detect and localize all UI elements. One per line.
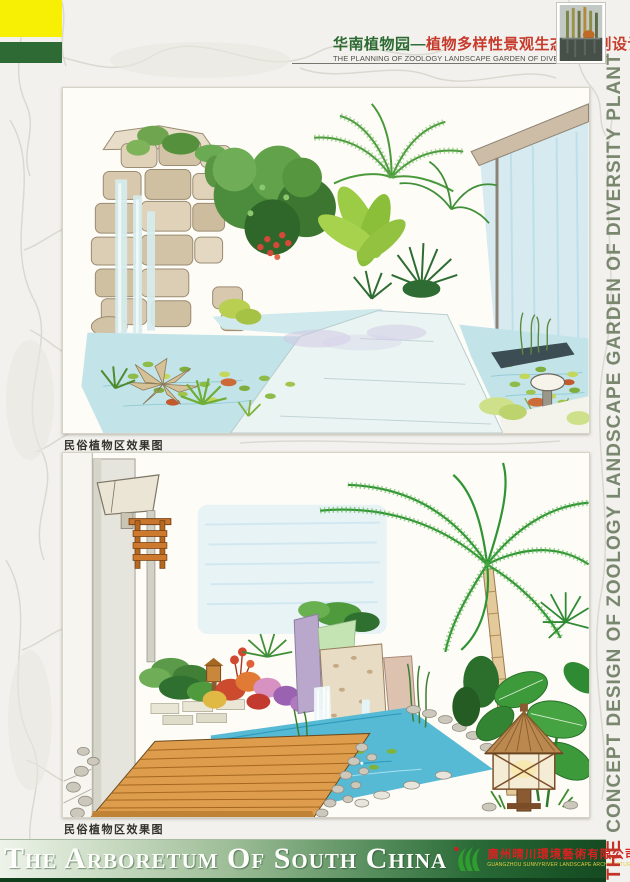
panel-caption: 民俗植物区效果图 xyxy=(64,821,164,837)
watercolor-rendering-waterfall-pond xyxy=(63,88,589,433)
autumn-trees-photo xyxy=(559,5,603,61)
sunnyriver-logo xyxy=(453,845,483,873)
side-title-the: THE xyxy=(604,839,625,880)
presentation-board: 华南植物园—植物多样性景观生态园规划设计 THE PLANNING OF ZOO… xyxy=(0,0,630,882)
side-title-rest: CONCEPT DESIGN OF ZOOLOGY LANDSCAPE GARD… xyxy=(604,52,625,839)
rendering-panel-folk-area-1 xyxy=(62,87,590,434)
corner-yellow-block xyxy=(0,0,62,37)
side-vertical-title: THE CONCEPT DESIGN OF ZOOLOGY LANDSCAPE … xyxy=(604,0,630,882)
header-underline xyxy=(292,63,592,64)
corner-green-block xyxy=(0,42,62,63)
footer-banner: The Arboretum Of South China 廣州晴川環境藝術有限公… xyxy=(0,839,606,882)
side-vertical-title-text: THE CONCEPT DESIGN OF ZOOLOGY LANDSCAPE … xyxy=(604,0,630,882)
watercolor-rendering-deck-lantern xyxy=(63,453,589,817)
panel-caption: 民俗植物区效果图 xyxy=(64,437,164,453)
project-title-zh-prefix: 华南植物园— xyxy=(333,36,426,53)
corner-photo-thumbnail xyxy=(556,2,606,64)
rendering-panel-folk-area-2 xyxy=(62,452,590,818)
arboretum-title: The Arboretum Of South China xyxy=(4,844,447,874)
